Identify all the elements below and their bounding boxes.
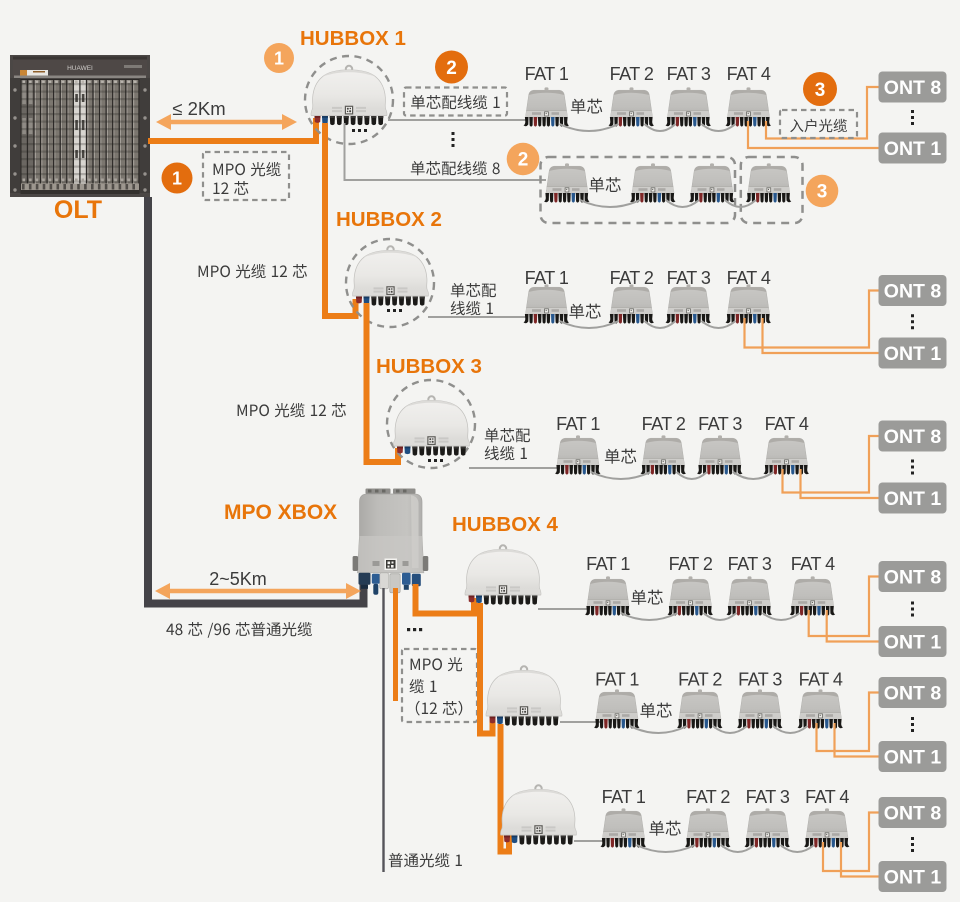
svg-text:FAT 1: FAT 1	[586, 554, 630, 574]
svg-text:1: 1	[274, 49, 284, 69]
svg-text:ONT 1: ONT 1	[884, 343, 942, 365]
svg-text:HUBBOX 2: HUBBOX 2	[336, 208, 442, 231]
svg-text:ONT 8: ONT 8	[884, 426, 942, 448]
svg-text:HUAWEI: HUAWEI	[67, 65, 93, 72]
svg-text:OLT: OLT	[54, 196, 102, 224]
svg-text:HUBBOX 1: HUBBOX 1	[300, 27, 406, 50]
svg-text:FAT 4: FAT 4	[765, 414, 809, 434]
svg-text:FAT 3: FAT 3	[746, 787, 790, 807]
svg-text:ONT 8: ONT 8	[884, 803, 942, 825]
svg-text:ONT 8: ONT 8	[884, 683, 942, 705]
svg-text:FAT 1: FAT 1	[602, 787, 646, 807]
svg-text:FAT 3: FAT 3	[698, 414, 742, 434]
svg-text:FAT 2: FAT 2	[642, 414, 686, 434]
svg-text:2~5Km: 2~5Km	[209, 569, 267, 589]
svg-text:2: 2	[446, 58, 457, 79]
svg-text:FAT 2: FAT 2	[686, 787, 730, 807]
svg-text:FAT 3: FAT 3	[738, 670, 782, 690]
svg-text:FAT 2: FAT 2	[669, 554, 713, 574]
svg-text:ONT 1: ONT 1	[884, 747, 942, 769]
svg-text:FAT 4: FAT 4	[805, 787, 849, 807]
svg-text:HUBBOX 4: HUBBOX 4	[452, 513, 559, 536]
svg-text:2: 2	[518, 150, 529, 171]
svg-text:3: 3	[817, 182, 828, 203]
svg-text:ONT 8: ONT 8	[884, 281, 942, 303]
svg-text:ONT 8: ONT 8	[884, 567, 942, 589]
svg-text:≤ 2Km: ≤ 2Km	[172, 98, 225, 119]
svg-text:FAT 4: FAT 4	[791, 554, 835, 574]
svg-text:FAT 3: FAT 3	[728, 554, 772, 574]
svg-text:FAT 2: FAT 2	[678, 670, 722, 690]
svg-text:FAT 4: FAT 4	[727, 64, 771, 84]
svg-text:1: 1	[172, 169, 182, 189]
svg-text:FAT 3: FAT 3	[667, 64, 711, 84]
svg-text:HUBBOX 3: HUBBOX 3	[376, 355, 482, 378]
svg-text:FAT 1: FAT 1	[595, 670, 639, 690]
svg-text:ONT 8: ONT 8	[884, 77, 942, 99]
svg-text:ONT 1: ONT 1	[884, 138, 942, 160]
svg-text:3: 3	[815, 80, 826, 101]
svg-text:ONT 1: ONT 1	[884, 632, 942, 654]
svg-text:ONT 1: ONT 1	[884, 488, 942, 510]
svg-text:MPO XBOX: MPO XBOX	[224, 501, 337, 524]
svg-text:FAT 1: FAT 1	[556, 414, 600, 434]
svg-text:FAT 4: FAT 4	[799, 670, 843, 690]
svg-text:FAT 2: FAT 2	[610, 64, 654, 84]
svg-text:ONT 1: ONT 1	[884, 867, 942, 889]
svg-text:FAT 1: FAT 1	[525, 64, 569, 84]
